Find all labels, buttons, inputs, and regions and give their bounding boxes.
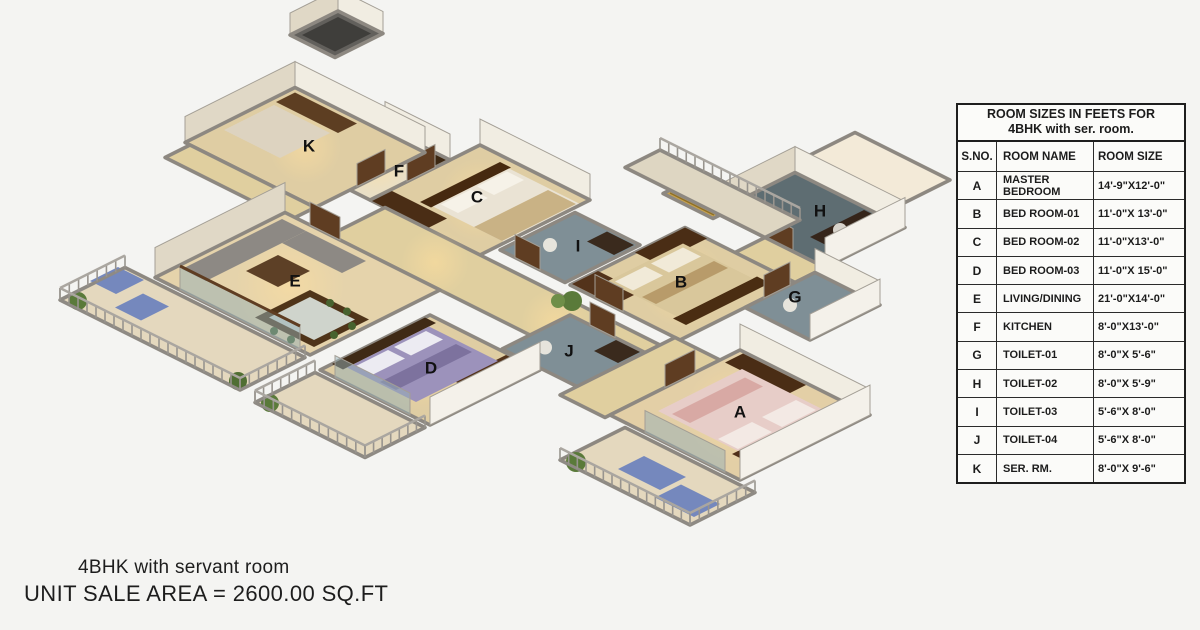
- table-row: BBED ROOM-0111'-0"X 13'-0": [958, 200, 1184, 228]
- plate: [343, 308, 351, 316]
- table-title: ROOM SIZES IN FEETS FOR 4BHK with ser. r…: [958, 105, 1184, 142]
- plan-caption-area: UNIT SALE AREA = 2600.00 SQ.FT: [24, 581, 388, 607]
- plate: [326, 299, 334, 307]
- cell-room-name: TOILET-02: [997, 370, 1094, 397]
- table-title-line2: 4BHK with ser. room.: [959, 122, 1183, 137]
- cell-sno: J: [958, 427, 997, 454]
- cell-room-name: TOILET-03: [997, 398, 1094, 425]
- room-label-F: F: [394, 161, 404, 180]
- cell-sno: A: [958, 172, 997, 199]
- col-header-name: ROOM NAME: [997, 142, 1094, 171]
- cell-sno: D: [958, 257, 997, 284]
- cell-room-name: BED ROOM-02: [997, 229, 1094, 256]
- room-label-J: J: [564, 341, 573, 360]
- room-label-D: D: [425, 358, 437, 377]
- cell-room-name: LIVING/DINING: [997, 285, 1094, 312]
- cell-room-size: 8'-0"X13'-0": [1094, 313, 1184, 340]
- cell-sno: C: [958, 229, 997, 256]
- table-row: FKITCHEN8'-0"X13'-0": [958, 313, 1184, 341]
- table-body: AMASTER BEDROOM14'-9"X12'-0"BBED ROOM-01…: [958, 172, 1184, 482]
- cell-sno: B: [958, 200, 997, 227]
- cell-sno: F: [958, 313, 997, 340]
- cell-sno: I: [958, 398, 997, 425]
- plant: [551, 294, 565, 308]
- cell-room-size: 5'-6"X 8'-0": [1094, 398, 1184, 425]
- cell-room-name: SER. RM.: [997, 455, 1094, 482]
- cell-room-size: 8'-0"X 5'-9": [1094, 370, 1184, 397]
- room-label-I: I: [576, 236, 581, 255]
- table-row: ELIVING/DINING21'-0"X14'-0": [958, 285, 1184, 313]
- room-label-K: K: [303, 136, 316, 155]
- table-row: JTOILET-045'-6"X 8'-0": [958, 427, 1184, 455]
- room-label-H: H: [814, 201, 826, 220]
- cell-room-name: MASTER BEDROOM: [997, 172, 1094, 199]
- cell-room-size: 11'-0"X 15'-0": [1094, 257, 1184, 284]
- table-row: ITOILET-035'-6"X 8'-0": [958, 398, 1184, 426]
- table-row: KSER. RM.8'-0"X 9'-6": [958, 455, 1184, 482]
- plan-caption-type: 4BHK with servant room: [78, 557, 289, 579]
- cell-room-size: 14'-9"X12'-0": [1094, 172, 1184, 199]
- table-title-line1: ROOM SIZES IN FEETS FOR: [959, 107, 1183, 122]
- cell-room-size: 5'-6"X 8'-0": [1094, 427, 1184, 454]
- cell-room-size: 8'-0"X 5'-6": [1094, 342, 1184, 369]
- cell-room-name: KITCHEN: [997, 313, 1094, 340]
- room-size-table: ROOM SIZES IN FEETS FOR 4BHK with ser. r…: [956, 103, 1186, 484]
- cell-room-name: BED ROOM-03: [997, 257, 1094, 284]
- table-row: GTOILET-018'-0"X 5'-6": [958, 342, 1184, 370]
- cell-sno: E: [958, 285, 997, 312]
- col-header-size: ROOM SIZE: [1094, 142, 1184, 171]
- page-canvas: ABCDEFGHIJK ROOM SIZES IN FEETS FOR 4BHK…: [0, 0, 1200, 630]
- cell-room-size: 8'-0"X 9'-6": [1094, 455, 1184, 482]
- cell-room-name: TOILET-01: [997, 342, 1094, 369]
- cell-sno: K: [958, 455, 997, 482]
- room-label-B: B: [675, 272, 687, 291]
- cell-room-name: TOILET-04: [997, 427, 1094, 454]
- room-label-C: C: [471, 187, 483, 206]
- cell-room-size: 11'-0"X 13'-0": [1094, 200, 1184, 227]
- table-row: HTOILET-028'-0"X 5'-9": [958, 370, 1184, 398]
- cell-room-size: 21'-0"X14'-0": [1094, 285, 1184, 312]
- room-label-G: G: [788, 287, 801, 306]
- commode: [543, 238, 557, 252]
- table-row: DBED ROOM-0311'-0"X 15'-0": [958, 257, 1184, 285]
- col-header-sno: S.NO.: [958, 142, 997, 171]
- table-header-row: S.NO. ROOM NAME ROOM SIZE: [958, 142, 1184, 172]
- cell-room-name: BED ROOM-01: [997, 200, 1094, 227]
- room-label-E: E: [289, 271, 300, 290]
- cell-room-size: 11'-0"X13'-0": [1094, 229, 1184, 256]
- cell-sno: G: [958, 342, 997, 369]
- room-label-A: A: [734, 402, 746, 421]
- table-row: CBED ROOM-0211'-0"X13'-0": [958, 229, 1184, 257]
- plate: [330, 331, 338, 339]
- plate: [348, 322, 356, 330]
- cell-sno: H: [958, 370, 997, 397]
- table-row: AMASTER BEDROOM14'-9"X12'-0": [958, 172, 1184, 200]
